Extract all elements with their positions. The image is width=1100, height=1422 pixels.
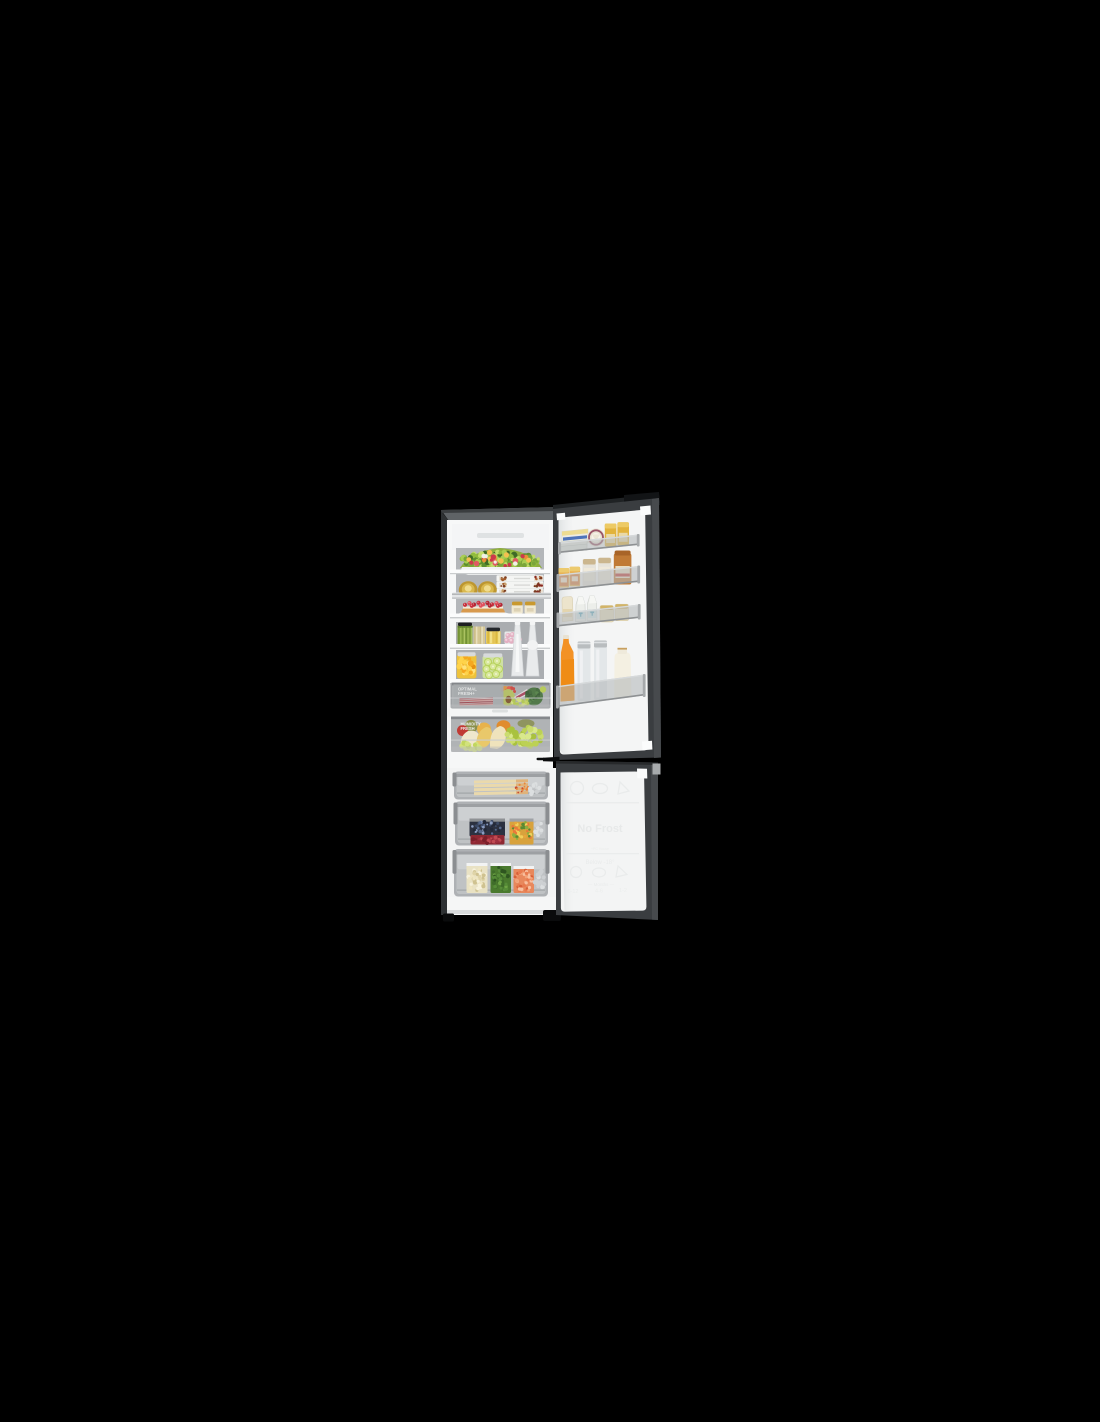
svg-text:6-12: 6-12 [567,889,578,895]
svg-text:4-6: 4-6 [595,889,603,895]
svg-text:— Months —: — Months — [588,882,615,887]
svg-text:No Frost: No Frost [577,823,623,835]
svg-text:+PC House: +PC House [591,847,609,851]
svg-text:FRESH: FRESH [461,726,475,731]
svg-text:Below -18°: Below -18° [585,860,615,866]
svg-text:1-2: 1-2 [619,888,627,894]
